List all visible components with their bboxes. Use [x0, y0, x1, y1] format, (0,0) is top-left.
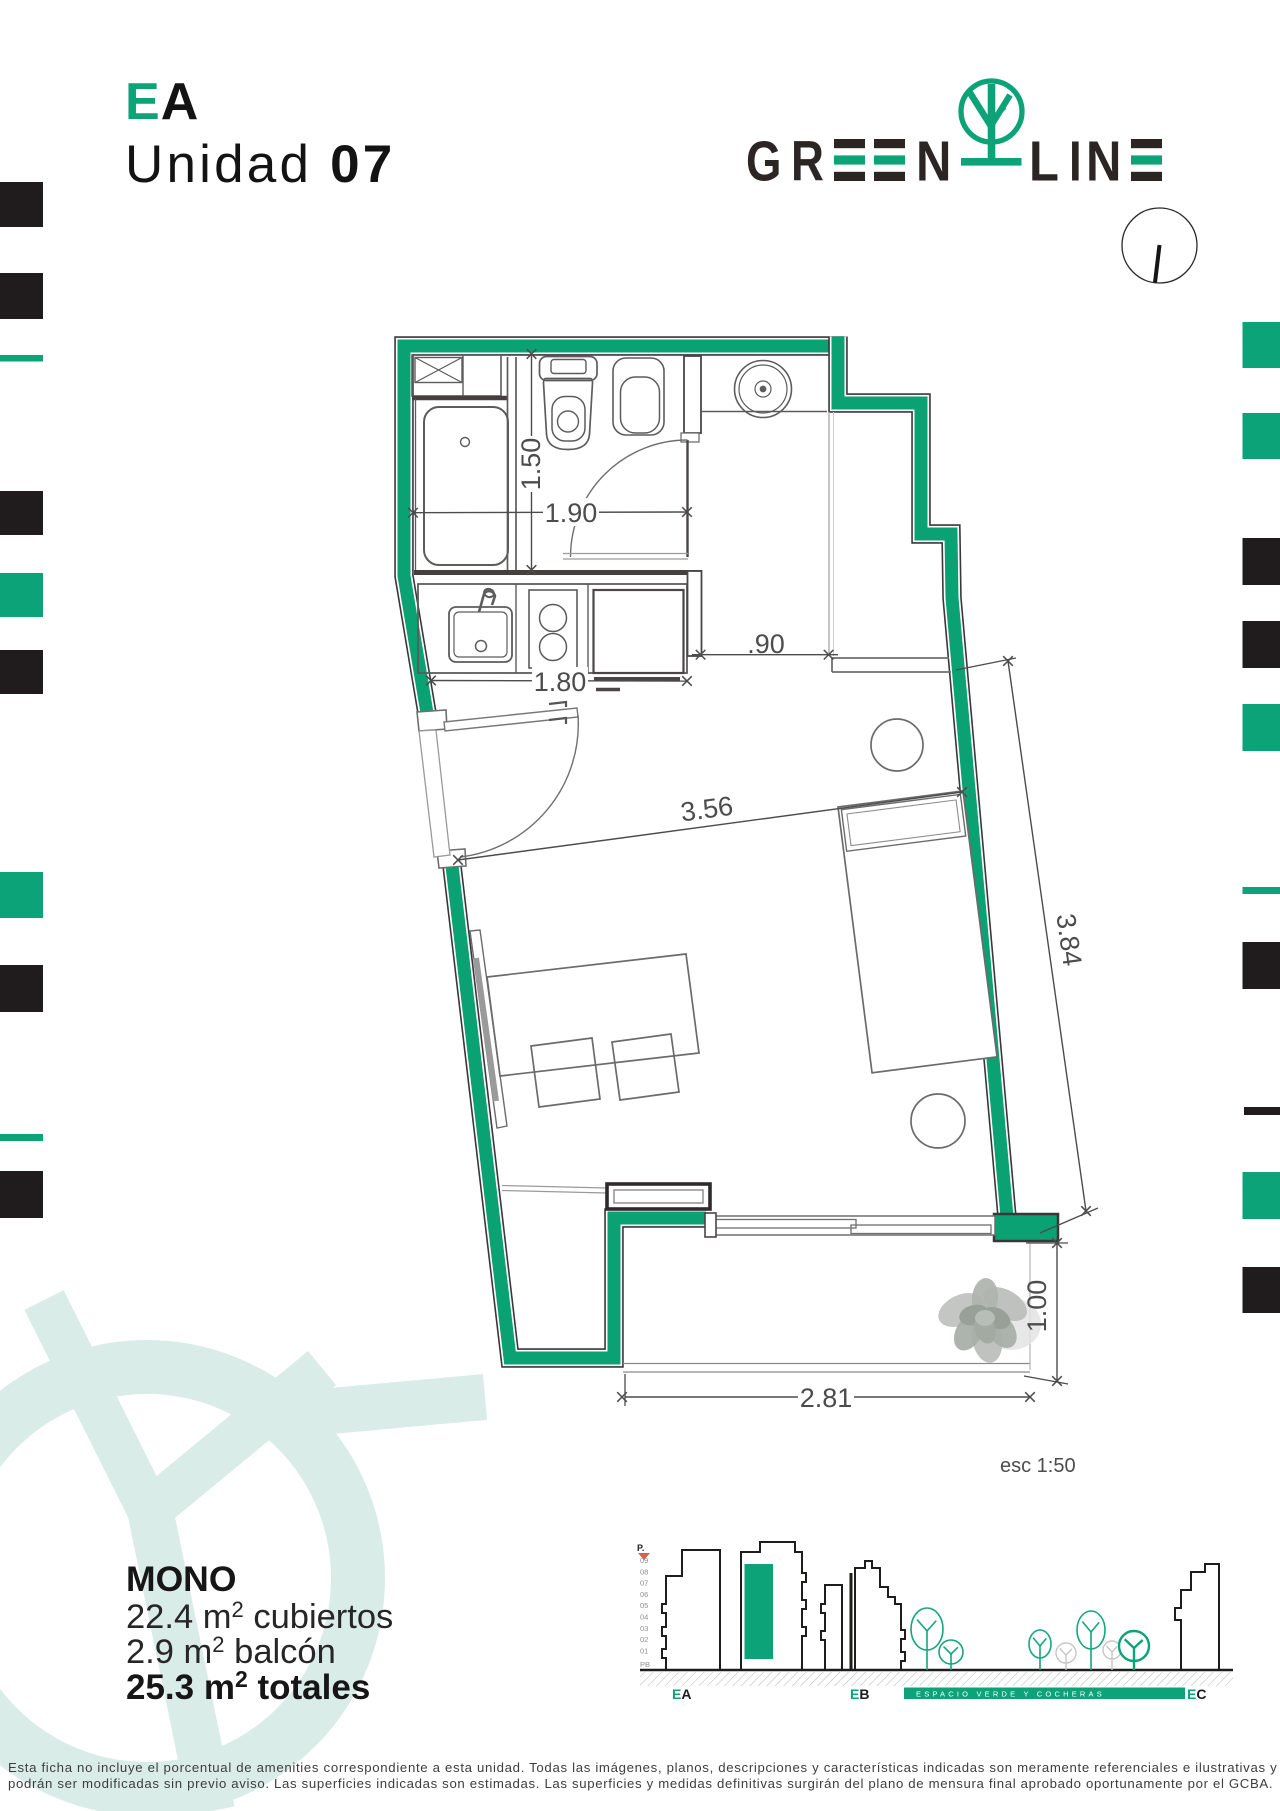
svg-text:1.80: 1.80 — [534, 667, 587, 697]
svg-text:04: 04 — [640, 1613, 648, 1622]
svg-text:I: I — [1069, 129, 1082, 193]
svg-text:1.90: 1.90 — [545, 498, 598, 528]
svg-text:podrán ser modificadas sin pre: podrán ser modificadas sin previo aviso.… — [8, 1776, 1273, 1791]
svg-text:L: L — [1029, 130, 1059, 193]
svg-text:02: 02 — [640, 1635, 648, 1644]
svg-text:P.: P. — [637, 1543, 644, 1553]
svg-text:25.3 m2 totales: 25.3 m2 totales — [126, 1666, 370, 1707]
svg-text:1.00: 1.00 — [1022, 1280, 1052, 1333]
svg-text:EC: EC — [1187, 1686, 1206, 1702]
svg-text:.90: .90 — [747, 629, 785, 659]
svg-text:1.50: 1.50 — [516, 438, 546, 491]
svg-text:06: 06 — [640, 1590, 648, 1599]
svg-text:2.81: 2.81 — [800, 1383, 853, 1413]
svg-text:G: G — [746, 129, 781, 193]
svg-text:07: 07 — [640, 1579, 648, 1588]
svg-text:08: 08 — [640, 1567, 648, 1576]
svg-text:N: N — [1086, 130, 1121, 193]
svg-text:01: 01 — [640, 1646, 648, 1655]
svg-text:R: R — [791, 129, 824, 193]
svg-text:MONO: MONO — [126, 1559, 236, 1599]
svg-text:ESPACIO VERDE Y COCHERAS: ESPACIO VERDE Y COCHERAS — [916, 1690, 1105, 1699]
svg-text:Unidad 07: Unidad 07 — [125, 135, 395, 194]
svg-text:EA: EA — [125, 73, 199, 131]
svg-text:03: 03 — [640, 1624, 648, 1633]
svg-text:PB: PB — [640, 1660, 650, 1669]
svg-text:Esta ficha no incluye el porce: Esta ficha no incluye el porcentual de a… — [8, 1760, 1277, 1775]
svg-text:09: 09 — [640, 1556, 648, 1565]
svg-text:EA: EA — [672, 1686, 691, 1702]
svg-text:2.9 m2 balcón: 2.9 m2 balcón — [126, 1632, 336, 1671]
svg-text:22.4 m2 cubiertos: 22.4 m2 cubiertos — [126, 1597, 393, 1636]
svg-text:N: N — [916, 130, 951, 193]
svg-text:esc 1:50: esc 1:50 — [1000, 1455, 1076, 1477]
svg-text:EB: EB — [850, 1686, 869, 1702]
svg-text:05: 05 — [640, 1601, 648, 1610]
